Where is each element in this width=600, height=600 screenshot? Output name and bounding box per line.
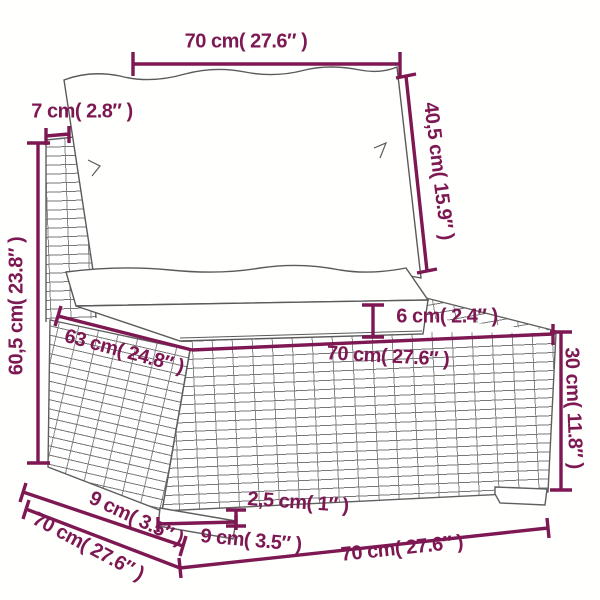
label-base-height: 30 cm( 11.8″ ) [559,347,586,469]
label-seat-height: 60,5 cm( 23.8″ ) [6,237,29,375]
label-top-width: 70 cm( 27.6″ ) [185,31,308,54]
label-cushion-thickness: 6 cm( 2.4″ ) [396,306,497,329]
label-back-thickness: 7 cm( 2.8″ ) [31,101,132,124]
product-dimension-diagram: 70 cm( 27.6″ ) 40,5 cm( 15.9″ ) 7 cm( 2.… [0,0,600,600]
